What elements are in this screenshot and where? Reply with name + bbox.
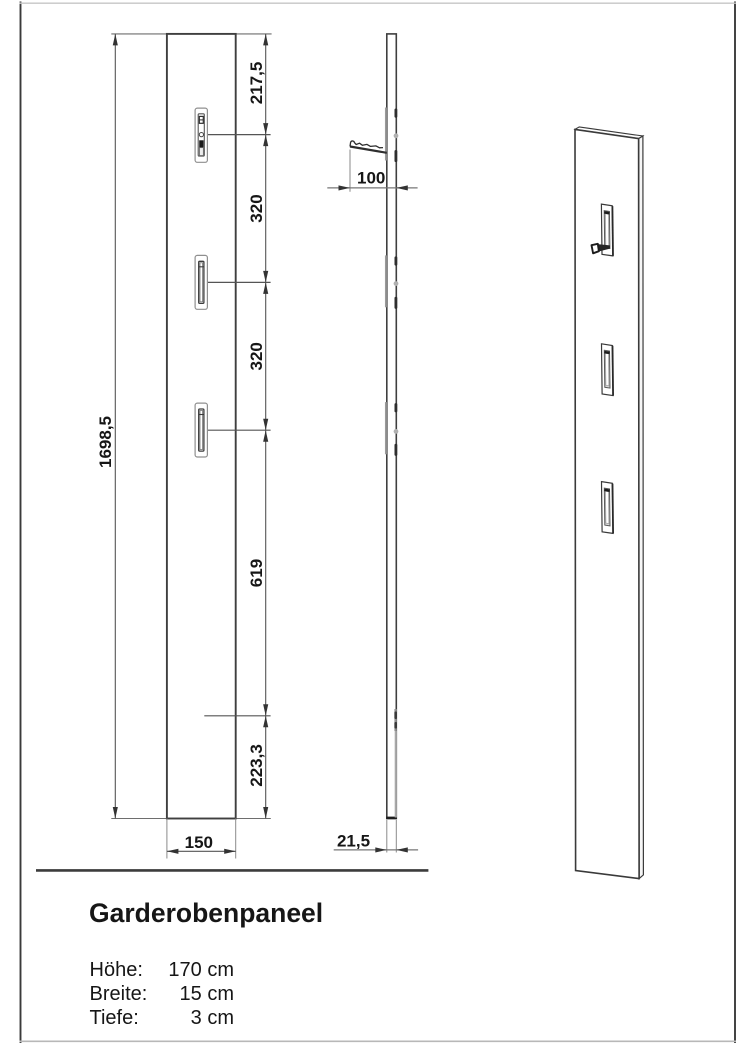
svg-text:Garderobenpaneel: Garderobenpaneel — [89, 898, 323, 928]
svg-text:1698,5: 1698,5 — [96, 416, 115, 468]
svg-text:223,3: 223,3 — [247, 744, 266, 787]
svg-text:Tiefe:: Tiefe: — [90, 1007, 139, 1029]
svg-text:170 cm: 170 cm — [168, 959, 234, 981]
svg-text:21,5: 21,5 — [337, 832, 370, 851]
svg-text:15 cm: 15 cm — [180, 983, 234, 1005]
svg-text:100: 100 — [357, 169, 385, 188]
svg-text:619: 619 — [247, 559, 266, 587]
svg-text:150: 150 — [185, 833, 213, 852]
svg-text:3 cm: 3 cm — [191, 1007, 234, 1029]
svg-text:320: 320 — [247, 194, 266, 222]
svg-text:320: 320 — [247, 342, 266, 370]
svg-text:Höhe:: Höhe: — [90, 959, 143, 981]
svg-text:Breite:: Breite: — [90, 983, 148, 1005]
svg-text:217,5: 217,5 — [247, 62, 266, 105]
